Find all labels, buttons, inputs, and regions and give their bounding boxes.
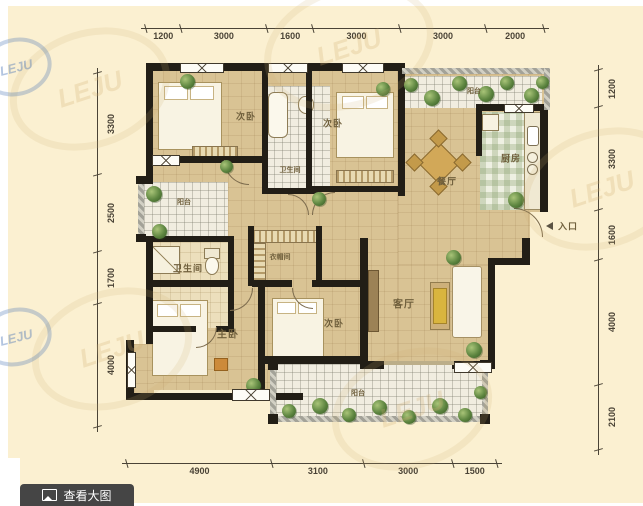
dimension-value: 1700 bbox=[106, 268, 116, 288]
wall bbox=[262, 188, 318, 194]
corner-post bbox=[268, 414, 278, 424]
dimension-row-top: 120030001600300030002000 bbox=[146, 24, 544, 42]
plant bbox=[432, 398, 448, 414]
dimension-value: 3300 bbox=[607, 149, 617, 169]
plant bbox=[446, 250, 461, 265]
corner-post bbox=[480, 414, 490, 424]
dimension-value: 3000 bbox=[214, 31, 234, 41]
plant bbox=[342, 408, 356, 422]
room-label-balcony-bottom: 阳台 bbox=[351, 388, 365, 398]
dimension-value: 3300 bbox=[106, 114, 116, 134]
pillow bbox=[157, 304, 178, 317]
corner-post bbox=[268, 360, 278, 370]
wall bbox=[262, 84, 268, 194]
wall bbox=[490, 258, 530, 265]
wall bbox=[146, 280, 230, 287]
room-label-bedroom-bottom: 次卧 bbox=[324, 317, 344, 330]
dimension-value: 1200 bbox=[607, 79, 617, 99]
leju-logo-watermark: LEJU bbox=[0, 300, 58, 374]
wall bbox=[488, 258, 495, 368]
wall bbox=[258, 287, 265, 393]
plant bbox=[372, 400, 387, 415]
plant bbox=[376, 82, 390, 96]
room-label-balcony-top: 阳台 bbox=[467, 86, 481, 96]
leju-logo-watermark: LEJU bbox=[0, 30, 58, 104]
pillow bbox=[366, 96, 388, 109]
dresser bbox=[252, 230, 318, 243]
dimension-value: 1600 bbox=[607, 225, 617, 245]
dresser-v bbox=[252, 243, 266, 281]
plant bbox=[146, 186, 162, 202]
wall bbox=[540, 108, 548, 212]
wall bbox=[306, 71, 312, 189]
dimension-line bbox=[141, 28, 549, 29]
wall bbox=[252, 280, 292, 287]
room-label-bath-top: 卫生间 bbox=[280, 165, 301, 175]
plant bbox=[404, 78, 418, 92]
pillow bbox=[190, 86, 214, 100]
plant bbox=[424, 90, 440, 106]
chair-accent bbox=[214, 358, 228, 371]
wall bbox=[228, 236, 234, 332]
dimension-value: 2100 bbox=[607, 407, 617, 427]
room-label-bedroom-top-mid: 次卧 bbox=[323, 117, 343, 130]
room-label-entrance: 入口 bbox=[558, 220, 578, 233]
floor-plan: 次卧 卫生间 次卧 阳台 厨房 餐厅 入口 阳台 卫生间 衣帽间 客厅 主卧 次… bbox=[0, 0, 643, 503]
plant bbox=[466, 342, 482, 358]
plant bbox=[508, 192, 524, 208]
dimension-row-bottom: 4900310030001500 bbox=[127, 459, 497, 477]
light-wall bbox=[384, 361, 454, 365]
window-symbol bbox=[504, 104, 534, 113]
window-symbol bbox=[454, 362, 492, 373]
plant bbox=[220, 160, 233, 173]
wall bbox=[316, 226, 322, 286]
plant bbox=[474, 386, 487, 399]
room-label-master: 主卧 bbox=[217, 326, 239, 341]
corner-post bbox=[136, 234, 146, 242]
plant bbox=[312, 192, 326, 206]
rail bbox=[544, 68, 550, 110]
plant bbox=[458, 408, 472, 422]
wall bbox=[264, 356, 364, 364]
sink bbox=[527, 126, 539, 146]
dimension-value: 4900 bbox=[190, 466, 210, 476]
dimension-col-right: 12003300160040002100 bbox=[593, 70, 619, 450]
plant bbox=[312, 398, 328, 414]
entrance-arrow-icon bbox=[546, 222, 553, 230]
wall bbox=[360, 238, 368, 369]
dimension-value: 4000 bbox=[106, 355, 116, 375]
dimension-value: 1600 bbox=[280, 31, 300, 41]
sofa bbox=[452, 266, 482, 338]
page-corner bbox=[0, 458, 20, 503]
plant bbox=[536, 76, 549, 89]
stove-burner bbox=[527, 164, 538, 175]
dresser bbox=[336, 170, 394, 183]
floorplan-image: 次卧 卫生间 次卧 阳台 厨房 餐厅 入口 阳台 卫生间 衣帽间 客厅 主卧 次… bbox=[8, 6, 643, 503]
accent-item bbox=[433, 288, 447, 324]
dimension-value: 3000 bbox=[398, 466, 418, 476]
wall bbox=[306, 186, 405, 192]
image-icon bbox=[42, 489, 57, 501]
pillow bbox=[277, 302, 296, 314]
rail bbox=[138, 178, 144, 240]
room-label-dining: 餐厅 bbox=[437, 175, 457, 188]
plant bbox=[180, 74, 195, 89]
dimension-value: 1500 bbox=[465, 466, 485, 476]
dimension-value: 3000 bbox=[347, 31, 367, 41]
bathtub bbox=[268, 92, 288, 138]
plant bbox=[282, 404, 296, 418]
view-large-label: 查看大图 bbox=[63, 487, 111, 504]
window-symbol bbox=[127, 352, 136, 388]
pillow bbox=[180, 304, 201, 317]
dimension-value: 3100 bbox=[308, 466, 328, 476]
fridge bbox=[482, 114, 499, 131]
stove-burner bbox=[527, 152, 538, 163]
window-symbol bbox=[152, 155, 180, 166]
entrance-door-arc bbox=[514, 208, 543, 237]
window-symbol bbox=[180, 63, 224, 73]
room-label-bedroom-top-left: 次卧 bbox=[236, 110, 256, 123]
wall bbox=[476, 104, 482, 156]
wall bbox=[126, 393, 303, 400]
corner-post bbox=[136, 176, 146, 184]
room-label-kitchen: 厨房 bbox=[501, 152, 521, 165]
dimension-value: 3000 bbox=[433, 31, 453, 41]
dimension-value: 4000 bbox=[607, 312, 617, 332]
dimension-value: 1200 bbox=[153, 31, 173, 41]
dimension-col-left: 3300250017004000 bbox=[92, 73, 114, 427]
window-symbol bbox=[232, 389, 270, 401]
plant bbox=[402, 410, 416, 424]
dimension-value: 2500 bbox=[106, 203, 116, 223]
room-label-balcony-left: 阳台 bbox=[177, 197, 191, 207]
rail bbox=[402, 68, 548, 74]
wall bbox=[248, 226, 254, 286]
room-label-bath-left: 卫生间 bbox=[173, 262, 203, 275]
plant bbox=[452, 76, 467, 91]
window-symbol bbox=[342, 63, 384, 73]
dimension-line bbox=[122, 463, 502, 464]
window-symbol bbox=[268, 63, 308, 73]
pillow bbox=[342, 96, 364, 109]
plant bbox=[152, 224, 167, 239]
room-label-living: 客厅 bbox=[393, 296, 415, 311]
wall bbox=[146, 326, 196, 332]
dimension-value: 2000 bbox=[505, 31, 525, 41]
rail bbox=[270, 362, 276, 422]
tv-cabinet bbox=[368, 270, 379, 332]
room-label-closet: 衣帽间 bbox=[270, 252, 291, 262]
plant bbox=[524, 88, 539, 103]
rail bbox=[270, 416, 488, 422]
floor-tan bbox=[134, 344, 154, 394]
plant bbox=[500, 76, 514, 90]
toilet bbox=[205, 257, 219, 275]
